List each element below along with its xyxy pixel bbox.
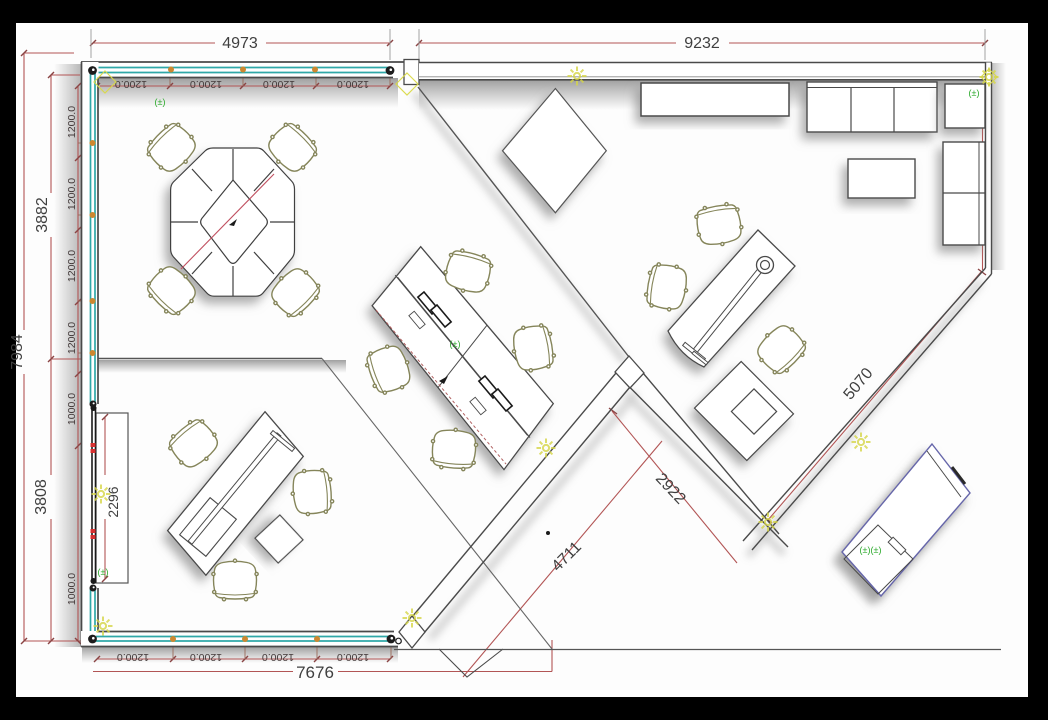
- svg-text:1200.0: 1200.0: [190, 651, 222, 663]
- svg-text:1000.0: 1000.0: [66, 573, 78, 605]
- svg-text:3808: 3808: [33, 479, 50, 515]
- svg-text:1200.0: 1200.0: [262, 651, 294, 663]
- svg-text:4973: 4973: [222, 35, 258, 52]
- svg-text:7984: 7984: [9, 334, 26, 370]
- svg-text:1000.0: 1000.0: [66, 393, 78, 425]
- svg-text:1200.0: 1200.0: [115, 78, 147, 90]
- svg-text:2296: 2296: [105, 486, 121, 517]
- svg-text:(±): (±): [871, 545, 882, 555]
- svg-text:1200.0: 1200.0: [263, 78, 295, 90]
- svg-text:1200.0: 1200.0: [66, 250, 78, 282]
- svg-text:1200.0: 1200.0: [66, 322, 78, 354]
- svg-text:(±): (±): [450, 339, 461, 349]
- svg-text:(±): (±): [155, 97, 166, 107]
- svg-text:3882: 3882: [34, 197, 51, 233]
- svg-text:1200.0: 1200.0: [117, 651, 149, 663]
- svg-text:1200.0: 1200.0: [190, 78, 222, 90]
- svg-text:(±): (±): [98, 567, 109, 577]
- svg-text:7676: 7676: [296, 663, 334, 682]
- svg-text:1200.0: 1200.0: [337, 651, 369, 663]
- svg-text:1200.0: 1200.0: [66, 178, 78, 210]
- svg-text:(±): (±): [969, 88, 980, 98]
- svg-text:1200.0: 1200.0: [66, 106, 78, 138]
- svg-text:1200.0: 1200.0: [337, 78, 369, 90]
- svg-text:(±): (±): [860, 545, 871, 555]
- svg-text:9232: 9232: [684, 35, 720, 52]
